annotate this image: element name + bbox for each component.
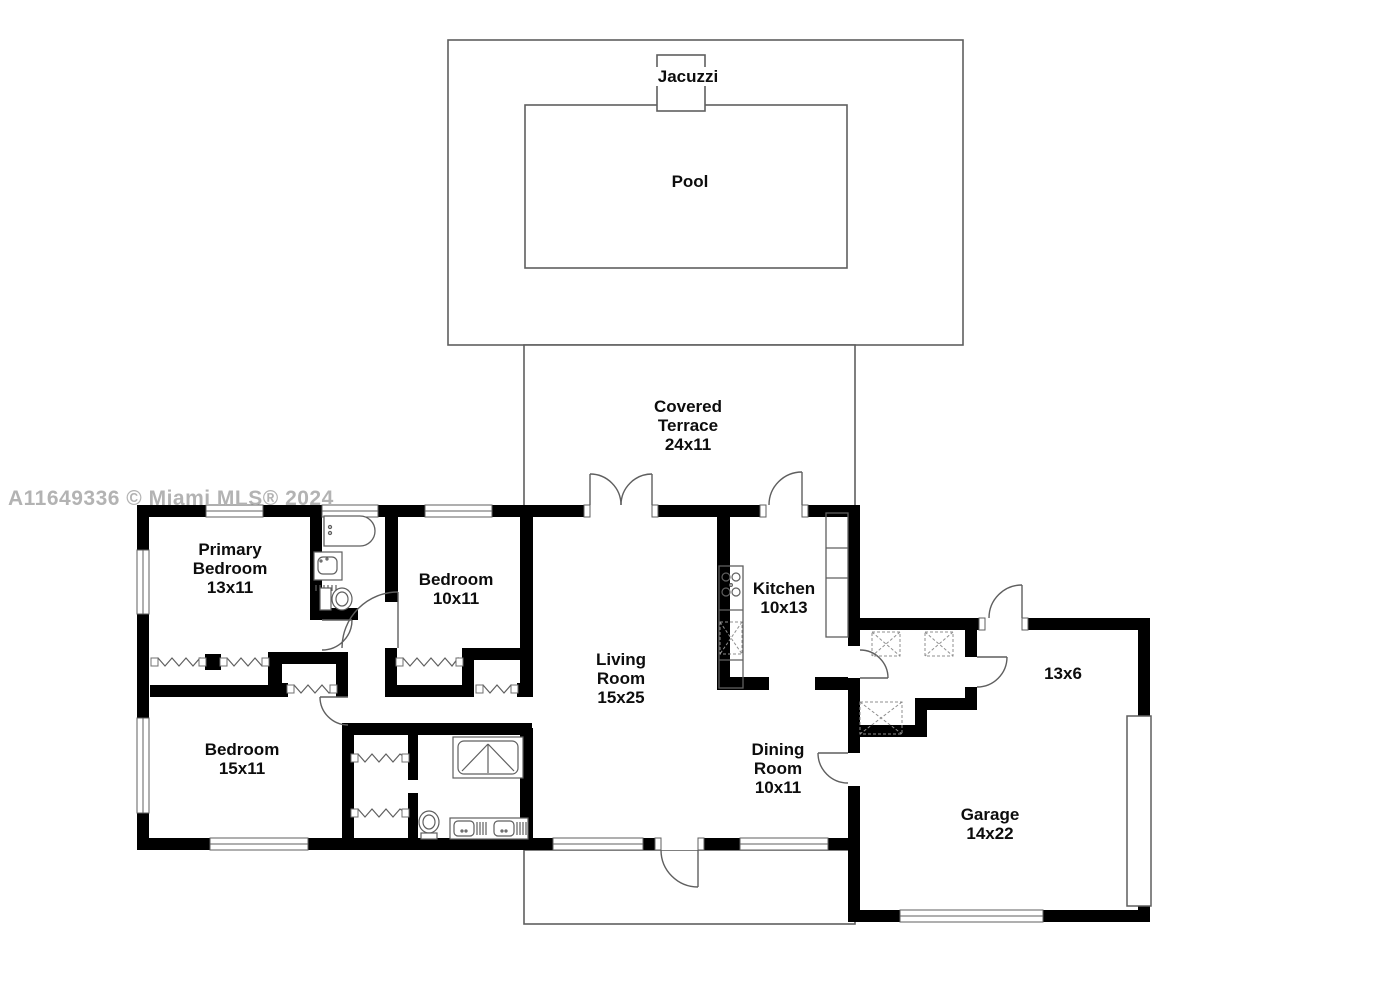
dining-dims: 10x11	[733, 778, 823, 797]
living-dims: 15x25	[576, 688, 666, 707]
double-vanity-icon	[450, 818, 528, 839]
bedroom2-name: Bedroom	[396, 570, 516, 589]
storage-dims: 13x6	[1013, 664, 1113, 683]
room-label-bedroom-10x11: Bedroom 10x11	[396, 570, 516, 608]
room-label-living-room: Living Room 15x25	[576, 650, 666, 707]
room-label-pool: Pool	[630, 172, 750, 191]
dining-name: Dining Room	[733, 740, 823, 778]
jacuzzi-name: Jacuzzi	[656, 67, 720, 86]
room-label-jacuzzi: Jacuzzi	[628, 67, 748, 86]
primary-bedroom-dims: 13x11	[175, 578, 285, 597]
terrace-dims: 24x11	[638, 435, 738, 454]
room-label-primary-bedroom: Primary Bedroom 13x11	[175, 540, 285, 597]
bedroom2-dims: 10x11	[396, 589, 516, 608]
room-label-bedroom-15x11: Bedroom 15x11	[182, 740, 302, 778]
toilet2-icon	[419, 811, 439, 839]
room-label-kitchen: Kitchen 10x13	[724, 579, 844, 617]
bedroom3-name: Bedroom	[182, 740, 302, 759]
mls-watermark: A11649336 © Miami MLS® 2024	[8, 487, 334, 511]
garage-door	[1127, 716, 1151, 906]
bedroom3-dims: 15x11	[182, 759, 302, 778]
garage-dims: 14x22	[930, 824, 1050, 843]
room-label-storage-13x6: 13x6	[1013, 664, 1113, 683]
toilet-icon	[320, 588, 352, 610]
bathtub-icon	[324, 516, 375, 546]
living-name: Living Room	[576, 650, 666, 688]
floorplan-canvas: Jacuzzi Pool Covered Terrace 24x11 Prima…	[0, 0, 1375, 1000]
pool-name: Pool	[630, 172, 750, 191]
garage-name: Garage	[930, 805, 1050, 824]
room-label-dining-room: Dining Room 10x11	[733, 740, 823, 797]
front-porch-outline	[524, 850, 855, 924]
shower-icon	[453, 737, 523, 778]
primary-bedroom-name: Primary Bedroom	[175, 540, 285, 578]
room-label-garage: Garage 14x22	[930, 805, 1050, 843]
kitchen-name: Kitchen	[724, 579, 844, 598]
terrace-name: Covered Terrace	[638, 397, 738, 435]
room-label-covered-terrace: Covered Terrace 24x11	[638, 397, 738, 454]
kitchen-dims: 10x13	[724, 598, 844, 617]
